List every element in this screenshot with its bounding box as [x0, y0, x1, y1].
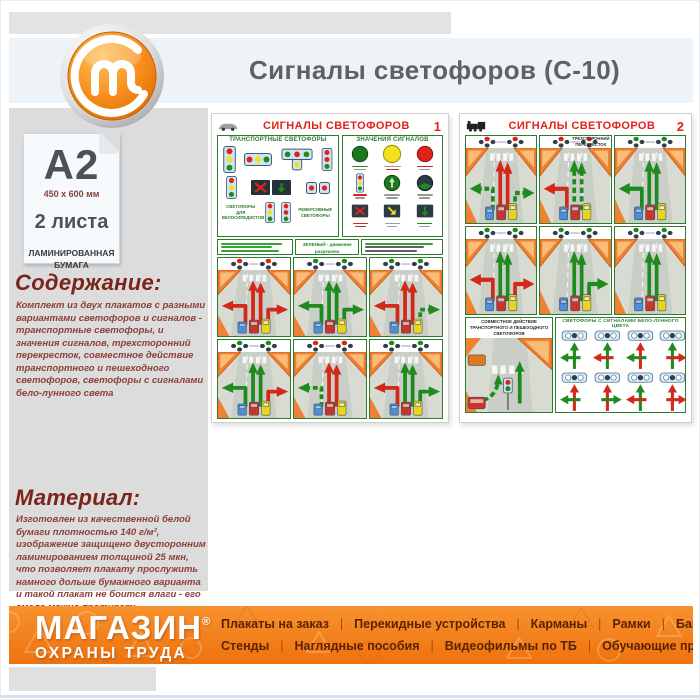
- menu-item[interactable]: Обучающие программы: [602, 639, 693, 653]
- bottom-edge-line: [1, 695, 699, 698]
- moon-signal-item: [558, 330, 591, 371]
- footer-menu: Плакаты на заказ| Перекидные устройства|…: [221, 613, 685, 657]
- traffic-light-vertical-icon: [265, 202, 275, 223]
- joint-action-cell: СОВМЕСТНОЕ ДЕЙСТВИЕ ТРАНСПОРТНОГО И ПЕШЕ…: [465, 317, 553, 413]
- signal-dark-segment-circle: [409, 173, 441, 201]
- menu-separator: |: [588, 639, 591, 653]
- signal-red-circle: [409, 144, 441, 172]
- dimensions-label: 450 x 600 мм: [24, 189, 119, 199]
- material-heading: Материал:: [15, 485, 140, 511]
- menu-row-1: Плакаты на заказ| Перекидные устройства|…: [221, 613, 685, 635]
- bicycle-lights-label: СВЕТОФОРЫ ДЛЯ ВЕЛОСИПЕДИСТОВ: [222, 204, 260, 221]
- intersection-cell: [217, 339, 291, 419]
- signal-green-circle: [344, 144, 376, 172]
- intersection-cell: [465, 135, 537, 224]
- contents-heading: Содержание:: [15, 270, 162, 296]
- traffic-light-vertical-icon: [223, 146, 236, 173]
- traffic-light-t-shape-icon: [281, 148, 313, 171]
- poster-thumbnail-1: СИГНАЛЫ СВЕТОФОРОВ 1 ТРАНСПОРТНЫЕ СВЕТОФ…: [211, 113, 449, 423]
- joint-action-label: СОВМЕСТНОЕ ДЕЙСТВИЕ ТРАНСПОРТНОГО И ПЕШЕ…: [466, 318, 552, 338]
- intersection-cell: [614, 135, 686, 224]
- intersection-cell: [369, 257, 443, 337]
- intersection-cell: [293, 257, 367, 337]
- menu-item[interactable]: Плакаты на заказ: [221, 617, 329, 631]
- intersection-cell: [614, 226, 686, 315]
- legend-left: [217, 239, 293, 255]
- reversive-lights-label: РЕВЕРСИВНЫЕ СВЕТОФОРЫ: [296, 207, 334, 218]
- poster1-header: СИГНАЛЫ СВЕТОФОРОВ 1: [217, 119, 443, 133]
- signal-mini-light: [344, 173, 376, 201]
- three-way-label: ТРЕХСТОРОННИЙ ПЕРЕКРЕСТОК: [571, 136, 611, 147]
- moon-signal-item: [656, 372, 686, 413]
- pedestrian-scene: [466, 338, 552, 412]
- brand-wordmark: МАГАЗИН: [35, 609, 202, 646]
- bottom-grey-bar: [9, 667, 156, 691]
- footer-bar: МАГАЗИН® ОХРАНЫ ТРУДА Плакаты на заказ| …: [9, 606, 693, 664]
- menu-item[interactable]: Перекидные устройства: [354, 617, 505, 631]
- intersection-cell: [539, 226, 611, 315]
- menu-separator: |: [662, 617, 665, 631]
- menu-item[interactable]: Карманы: [531, 617, 587, 631]
- format-label: A2: [24, 144, 119, 186]
- menu-separator: |: [431, 639, 434, 653]
- product-page: Сигналы светофоров (С-10) A2 450 x: [0, 0, 700, 700]
- lane-sign-yellow-arrow: [376, 201, 408, 229]
- locomotive-icon: [465, 121, 487, 132]
- traffic-light-horizontal-icon: [244, 153, 272, 166]
- moon-signal-item: [591, 330, 624, 371]
- material-text: Изготовлен из качественной белой бумаги …: [16, 514, 206, 614]
- contents-text: Комплект из двух плакатов с разными вари…: [16, 300, 206, 400]
- signal-meanings-section: ЗНАЧЕНИЯ СИГНАЛОВ: [342, 135, 443, 237]
- intersection-cell: [539, 135, 611, 224]
- reversive-lane-signs-icon: [251, 180, 291, 195]
- traffic-light-vertical-icon: [281, 202, 291, 223]
- menu-item[interactable]: Рамки: [612, 617, 650, 631]
- lane-sign-red-x: [344, 201, 376, 229]
- moon-signal-item: [656, 330, 686, 371]
- legend-strip: ЗЕЛЕНЫЙ - движение разрешено КРАСНЫЙ - д…: [217, 239, 443, 255]
- intersection-grid: [217, 257, 443, 419]
- sheets-label: 2 листа: [24, 211, 119, 234]
- signal-meanings-title: ЗНАЧЕНИЯ СИГНАЛОВ: [344, 137, 441, 143]
- traffic-light-pair-icon: [306, 182, 330, 194]
- moon-signal-item: [624, 372, 657, 413]
- menu-separator: |: [340, 617, 343, 631]
- poster1-title: СИГНАЛЫ СВЕТОФОРОВ: [239, 120, 434, 132]
- registered-mark: ®: [202, 616, 211, 628]
- three-way-cell: ТРЕХСТОРОННИЙ ПЕРЕКРЕСТОК: [539, 135, 611, 224]
- menu-separator: |: [516, 617, 519, 631]
- footer-brand[interactable]: МАГАЗИН® ОХРАНЫ ТРУДА: [35, 611, 211, 662]
- menu-item[interactable]: Видеофильмы по ТБ: [445, 639, 577, 653]
- intersection-cell: [465, 226, 537, 315]
- menu-separator: |: [280, 639, 283, 653]
- brand-subtitle: ОХРАНЫ ТРУДА: [35, 646, 211, 662]
- moon-signal-item: [591, 372, 624, 413]
- legend-green-rule: ЗЕЛЕНЫЙ - движение разрешено: [299, 241, 356, 255]
- legend-right: [361, 239, 443, 255]
- poster2-number: 2: [677, 119, 684, 134]
- poster2-header: СИГНАЛЫ СВЕТОФОРОВ 2: [465, 119, 686, 133]
- moon-signals-section: СВЕТОФОРЫ С СИГНАЛАМИ БЕЛО-ЛУННОГО ЦВЕТА: [555, 317, 686, 413]
- poster1-number: 1: [434, 119, 441, 134]
- format-card: A2 450 x 600 мм 2 листа ЛАМИНИРОВАННАЯ Б…: [23, 133, 120, 264]
- menu-separator: |: [598, 617, 601, 631]
- lane-sign-green-arrow: [409, 201, 441, 229]
- brand-logo[interactable]: [59, 23, 165, 129]
- poster-thumbnail-2: СИГНАЛЫ СВЕТОФОРОВ 2 ТРЕХСТОРОННИЙ ПЕРЕК…: [459, 113, 692, 423]
- moon-signal-item: [558, 372, 591, 413]
- signal-green-arrow-circle: [376, 173, 408, 201]
- car-icon: [217, 121, 239, 132]
- menu-item[interactable]: Багет: [676, 617, 693, 631]
- moon-signals-grid: [558, 330, 683, 413]
- traffic-light-vertical-icon: [321, 148, 333, 171]
- legend-middle: ЗЕЛЕНЫЙ - движение разрешено КРАСНЫЙ - д…: [295, 239, 360, 255]
- menu-item[interactable]: Стенды: [221, 639, 269, 653]
- menu-row-2: Стенды| Наглядные пособия| Видеофильмы п…: [221, 635, 685, 657]
- intersection-cell: [217, 257, 291, 337]
- product-info-panel: A2 450 x 600 мм 2 листа ЛАМИНИРОВАННАЯ Б…: [9, 108, 208, 591]
- intersection-cell: [369, 339, 443, 419]
- menu-item[interactable]: Наглядные пособия: [295, 639, 420, 653]
- moon-signal-item: [624, 330, 657, 371]
- traffic-light-vertical-icon: [226, 176, 237, 199]
- moon-signals-title: СВЕТОФОРЫ С СИГНАЛАМИ БЕЛО-ЛУННОГО ЦВЕТА: [558, 319, 683, 329]
- intersection-cell: [293, 339, 367, 419]
- brand-logo-icon: [59, 23, 165, 129]
- transport-lights-section: ТРАНСПОРТНЫЕ СВЕТОФОРЫ СВЕТОФОРЫ ДЛЯ ВЕЛ…: [217, 135, 339, 237]
- paper-type-label: ЛАМИНИРОВАННАЯ БУМАГА: [24, 247, 119, 272]
- signal-yellow-circle: [376, 144, 408, 172]
- transport-lights-title: ТРАНСПОРТНЫЕ СВЕТОФОРЫ: [219, 137, 337, 143]
- page-title: Сигналы светофоров (С-10): [249, 38, 620, 103]
- poster2-title: СИГНАЛЫ СВЕТОФОРОВ: [487, 120, 677, 132]
